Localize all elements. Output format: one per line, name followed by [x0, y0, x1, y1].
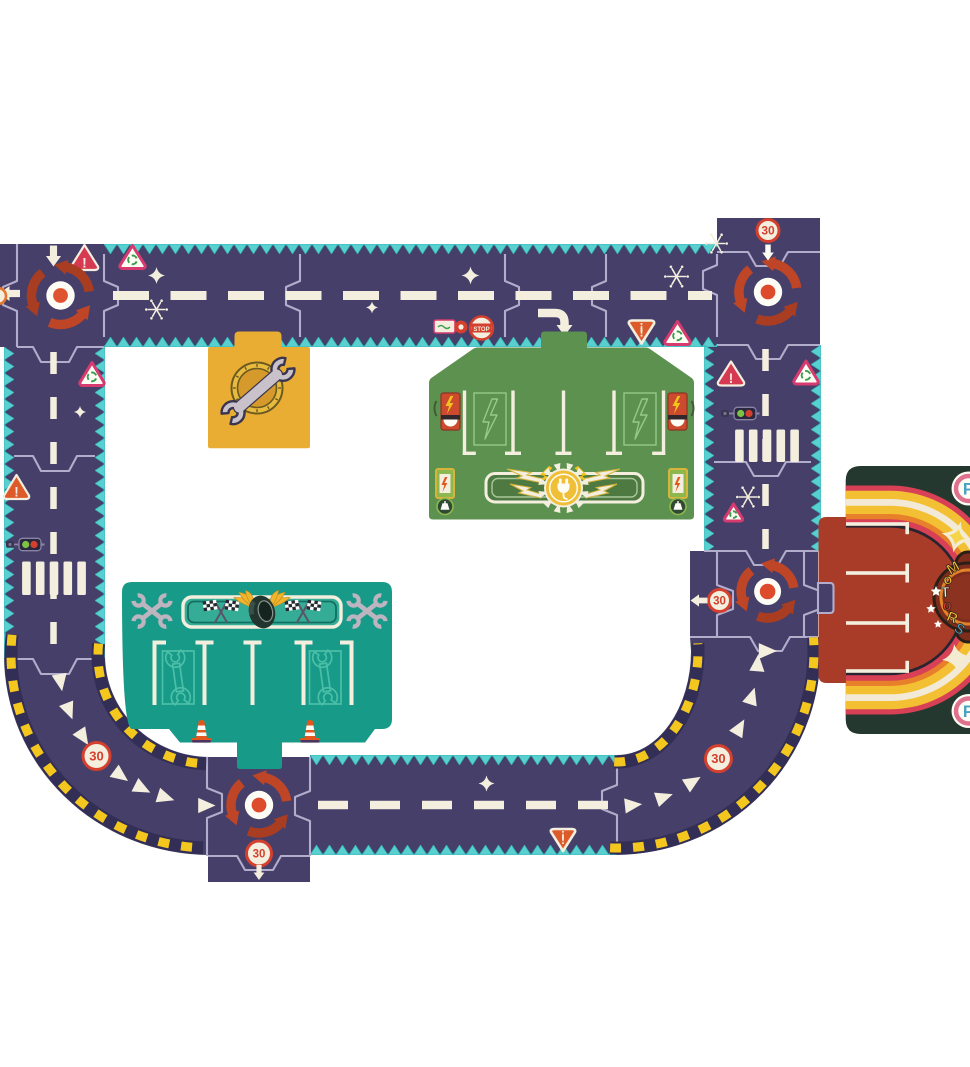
svg-text:!: !: [561, 833, 565, 847]
svg-text:30: 30: [761, 224, 775, 238]
svg-text:30: 30: [89, 749, 103, 764]
svg-text:!: !: [639, 325, 643, 340]
svg-text:30: 30: [253, 849, 266, 861]
svg-text:30: 30: [711, 751, 725, 766]
svg-text:P: P: [963, 480, 970, 499]
svg-text:STOP: STOP: [473, 327, 489, 333]
svg-text:P: P: [963, 702, 970, 721]
svg-text:30: 30: [713, 596, 726, 608]
svg-text:!: !: [729, 371, 733, 386]
svg-text:!: !: [14, 485, 18, 500]
svg-text:!: !: [82, 255, 87, 271]
